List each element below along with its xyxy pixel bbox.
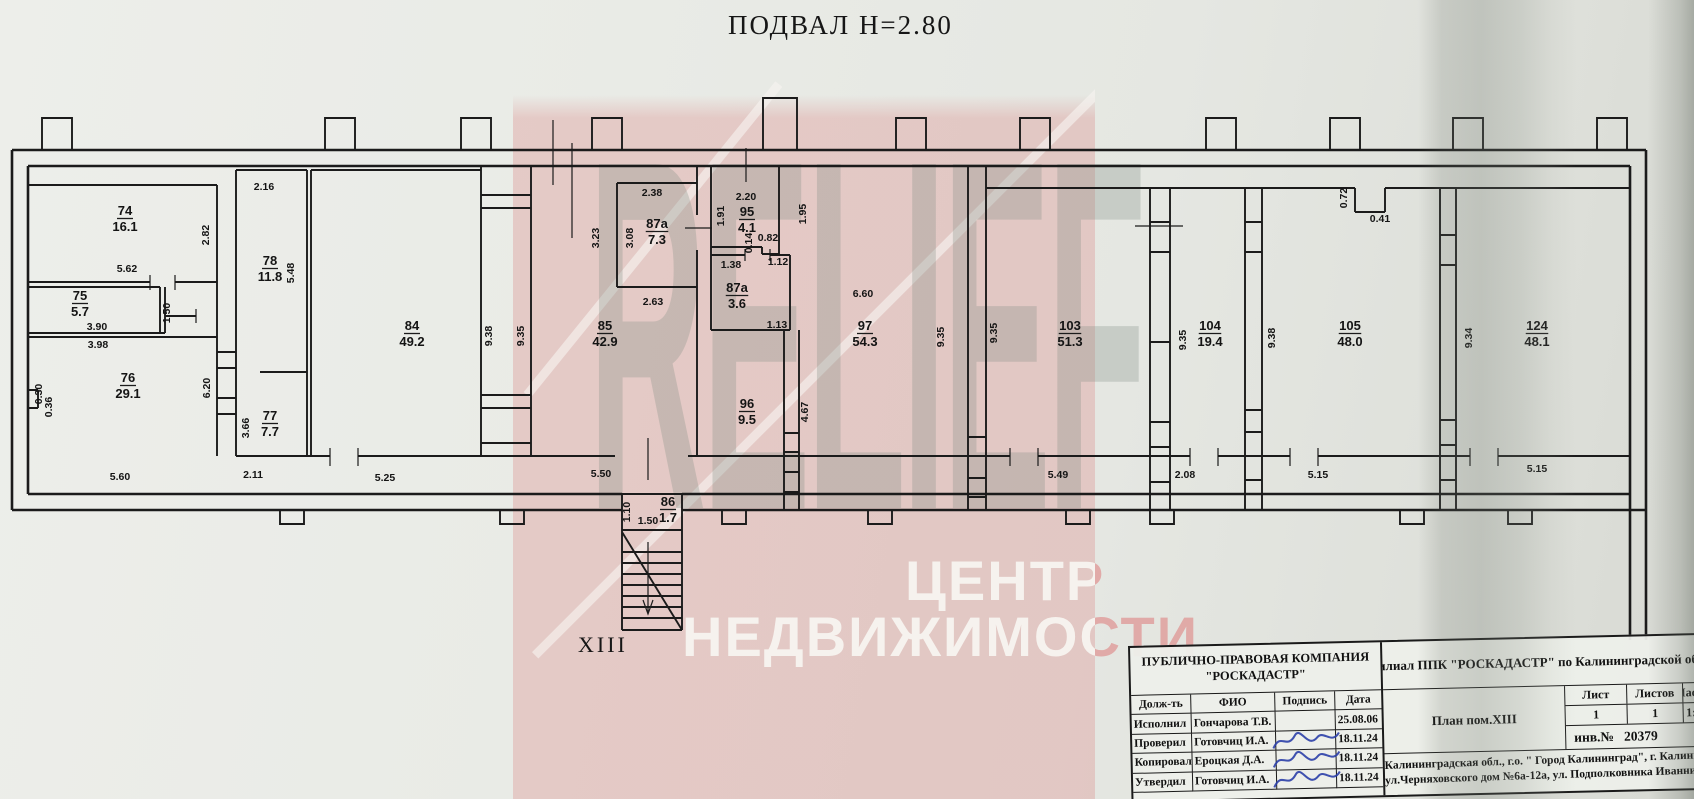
room-number: 74 — [118, 203, 133, 218]
room-label: 7416.1 — [112, 203, 137, 234]
dimension-label: 6.20 — [201, 378, 213, 399]
room-label: 7629.1 — [115, 370, 140, 401]
watermark-line2: НЕДВИЖИМОСТИ — [682, 604, 1095, 669]
company-name: ПУБЛИЧНО-ПРАВОВАЯ КОМПАНИЯ "РОСКАДАСТР" — [1130, 642, 1381, 696]
room-number: 76 — [121, 370, 135, 385]
room-label: 10548.0 — [1337, 318, 1362, 349]
dimension-label: 5.15 — [1308, 469, 1329, 481]
room-label: 7811.8 — [258, 253, 283, 284]
row-name: Готовчиц И.А. — [1192, 731, 1276, 752]
title-block: ПУБЛИЧНО-ПРАВОВАЯ КОМПАНИЯ "РОСКАДАСТР" … — [1128, 633, 1694, 799]
inventory-number: инв.№ 20379 — [1566, 723, 1694, 749]
title-block-middle: План пом.XIII Лист Листов Масштаб 1 1 1:… — [1383, 683, 1694, 755]
row-name: Гончарова Т.В. — [1192, 712, 1276, 733]
col-header-signature: Подпись — [1275, 691, 1335, 712]
room-label: 12448.1 — [1524, 318, 1549, 349]
dimension-label: 9.38 — [483, 326, 495, 347]
sheet-value-row: 1 1 1:100 — [1565, 703, 1694, 726]
plan-label: План пом.XIII — [1383, 686, 1566, 753]
row-name: Готовчиц И.А. — [1193, 770, 1277, 791]
dimension-label: 0.41 — [1370, 213, 1391, 225]
sheet-info: Лист Листов Масштаб 1 1 1:100 инв.№ 2037… — [1565, 683, 1694, 749]
sheets-value: 1 — [1627, 703, 1683, 723]
row-role: Копировал — [1132, 753, 1192, 774]
sheet-label: Лист — [1565, 685, 1627, 705]
inv-label: инв.№ — [1574, 728, 1614, 745]
room-area: 29.1 — [115, 386, 140, 401]
dimension-label: 1.50 — [161, 303, 173, 324]
scale-value: 1:100 — [1683, 703, 1694, 723]
dimension-label: 2.82 — [200, 225, 212, 246]
dimension-label: 0.72 — [1338, 188, 1350, 209]
title-block-right: Филиал ППК "РОСКАДАСТР" по Калининградск… — [1382, 635, 1694, 796]
scanned-floor-plan-page: RELIEF 7416.1755.77629.17811.8777.78449.… — [0, 0, 1694, 799]
dimension-label: 9.38 — [1266, 328, 1278, 349]
room-number: 77 — [263, 408, 277, 423]
col-header-name: ФИО — [1191, 693, 1275, 714]
dimension-label: 5.60 — [110, 471, 131, 483]
dimension-label: 5.62 — [117, 263, 138, 275]
sheet-header-row: Лист Листов Масштаб — [1565, 683, 1694, 706]
room-label: 777.7 — [261, 408, 279, 439]
row-role: Утвердил — [1133, 772, 1193, 793]
room-area: 11.8 — [258, 269, 283, 284]
sheet-value: 1 — [1565, 705, 1627, 725]
room-label: 8449.2 — [399, 318, 424, 349]
row-name: Ероцкая Д.А. — [1192, 751, 1276, 772]
room-area: 48.1 — [1524, 334, 1549, 349]
watermark-text-white-clip: ЦЕНТР НЕДВИЖИМОСТИ — [513, 0, 1095, 799]
row-date: 18.11.24 — [1336, 748, 1382, 768]
branch-name: Филиал ППК "РОСКАДАСТР" по Калининградск… — [1382, 635, 1694, 691]
row-role: Исполнил — [1132, 714, 1192, 735]
inv-value: 20379 — [1624, 728, 1658, 745]
dimension-label: 5.25 — [375, 472, 396, 484]
room-area: 16.1 — [112, 219, 137, 234]
row-signature — [1277, 769, 1337, 790]
scale-label: Масштаб — [1683, 683, 1694, 703]
dimension-label: 9.34 — [1463, 328, 1475, 349]
dimension-label: 2.11 — [243, 469, 263, 481]
dimension-label: 0.36 — [43, 397, 55, 418]
room-label: 755.7 — [71, 288, 89, 319]
room-number: 105 — [1339, 318, 1361, 333]
room-area: 7.7 — [261, 424, 279, 439]
room-number: 124 — [1526, 318, 1548, 333]
row-role: Проверил — [1132, 733, 1192, 754]
dimension-label: 3.66 — [240, 418, 252, 439]
sheets-label: Листов — [1627, 683, 1683, 703]
row-date: 25.08.06 — [1336, 710, 1382, 730]
room-area: 48.0 — [1337, 334, 1362, 349]
title-block-left: ПУБЛИЧНО-ПРАВОВАЯ КОМПАНИЯ "РОСКАДАСТР" … — [1130, 642, 1385, 799]
dimension-label: 3.98 — [88, 339, 109, 351]
page-title: ПОДВАЛ Н=2.80 — [728, 10, 953, 41]
room-number: 84 — [405, 318, 420, 333]
premises-section-label: XIII — [578, 632, 628, 658]
dimension-label: 2.16 — [254, 181, 275, 193]
room-number: 75 — [73, 288, 87, 303]
room-number: 78 — [263, 253, 277, 268]
signature-table: Долж-ть ФИО Подпись Дата ИсполнилГончаро… — [1131, 690, 1383, 799]
dimension-label: 5.15 — [1527, 463, 1548, 475]
row-date: 18.11.24 — [1337, 768, 1383, 788]
room-area: 5.7 — [71, 304, 89, 319]
col-header-role: Долж-ть — [1131, 695, 1191, 716]
dimension-label: 5.48 — [285, 263, 297, 284]
col-header-date: Дата — [1335, 690, 1381, 710]
row-date: 18.11.24 — [1336, 729, 1382, 749]
room-area: 49.2 — [399, 334, 424, 349]
dimension-label: 3.90 — [87, 321, 108, 333]
signature — [1271, 765, 1344, 794]
